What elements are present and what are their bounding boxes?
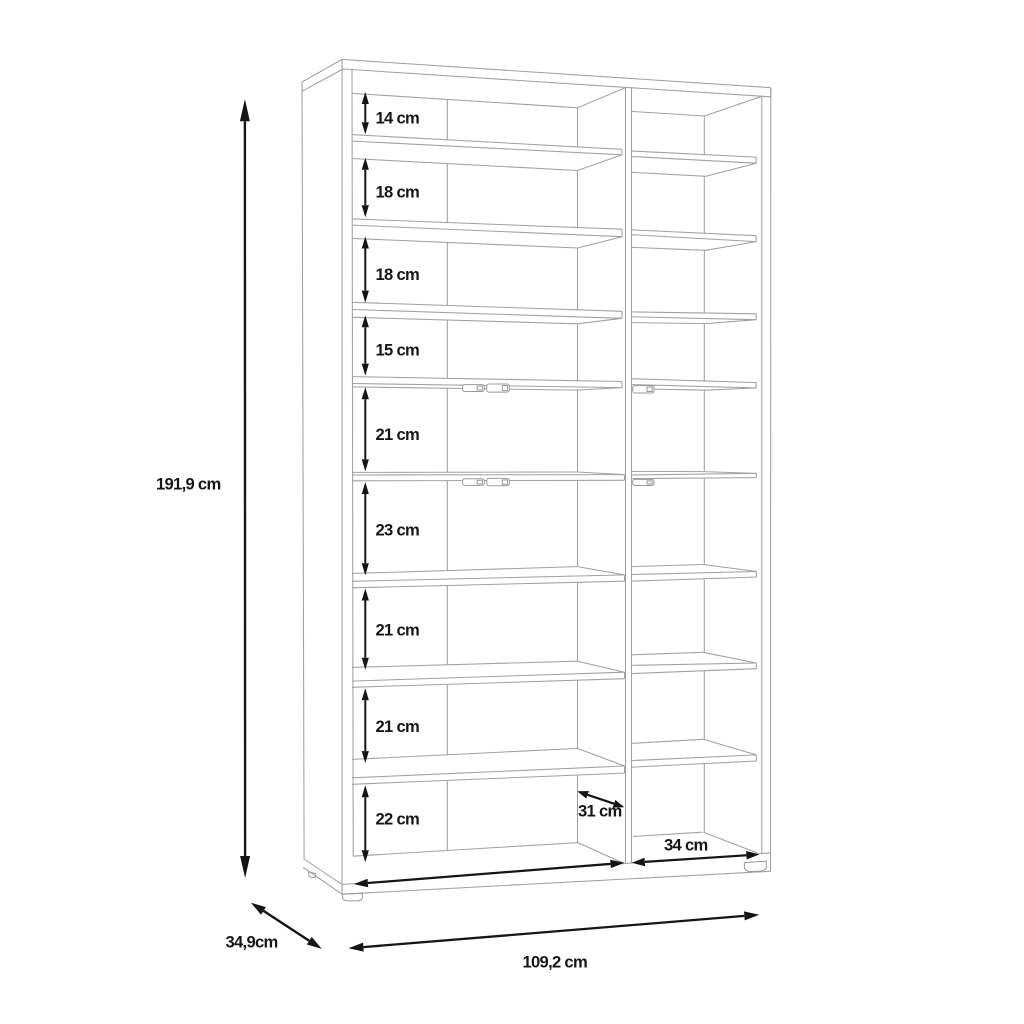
svg-text:18 cm: 18 cm	[376, 182, 420, 201]
svg-text:21 cm: 21 cm	[376, 425, 420, 444]
svg-text:22 cm: 22 cm	[376, 809, 420, 828]
svg-text:21 cm: 21 cm	[376, 717, 420, 736]
svg-text:109,2 cm: 109,2 cm	[523, 953, 588, 972]
svg-text:34 cm: 34 cm	[664, 836, 708, 855]
svg-text:191,9 cm: 191,9 cm	[156, 475, 221, 494]
svg-text:14 cm: 14 cm	[376, 109, 420, 128]
svg-text:18 cm: 18 cm	[376, 265, 420, 284]
svg-text:23 cm: 23 cm	[376, 520, 420, 539]
svg-text:34,9cm: 34,9cm	[226, 933, 278, 952]
svg-text:31 cm: 31 cm	[578, 801, 622, 820]
svg-text:15 cm: 15 cm	[376, 340, 420, 359]
svg-text:21 cm: 21 cm	[376, 620, 420, 639]
